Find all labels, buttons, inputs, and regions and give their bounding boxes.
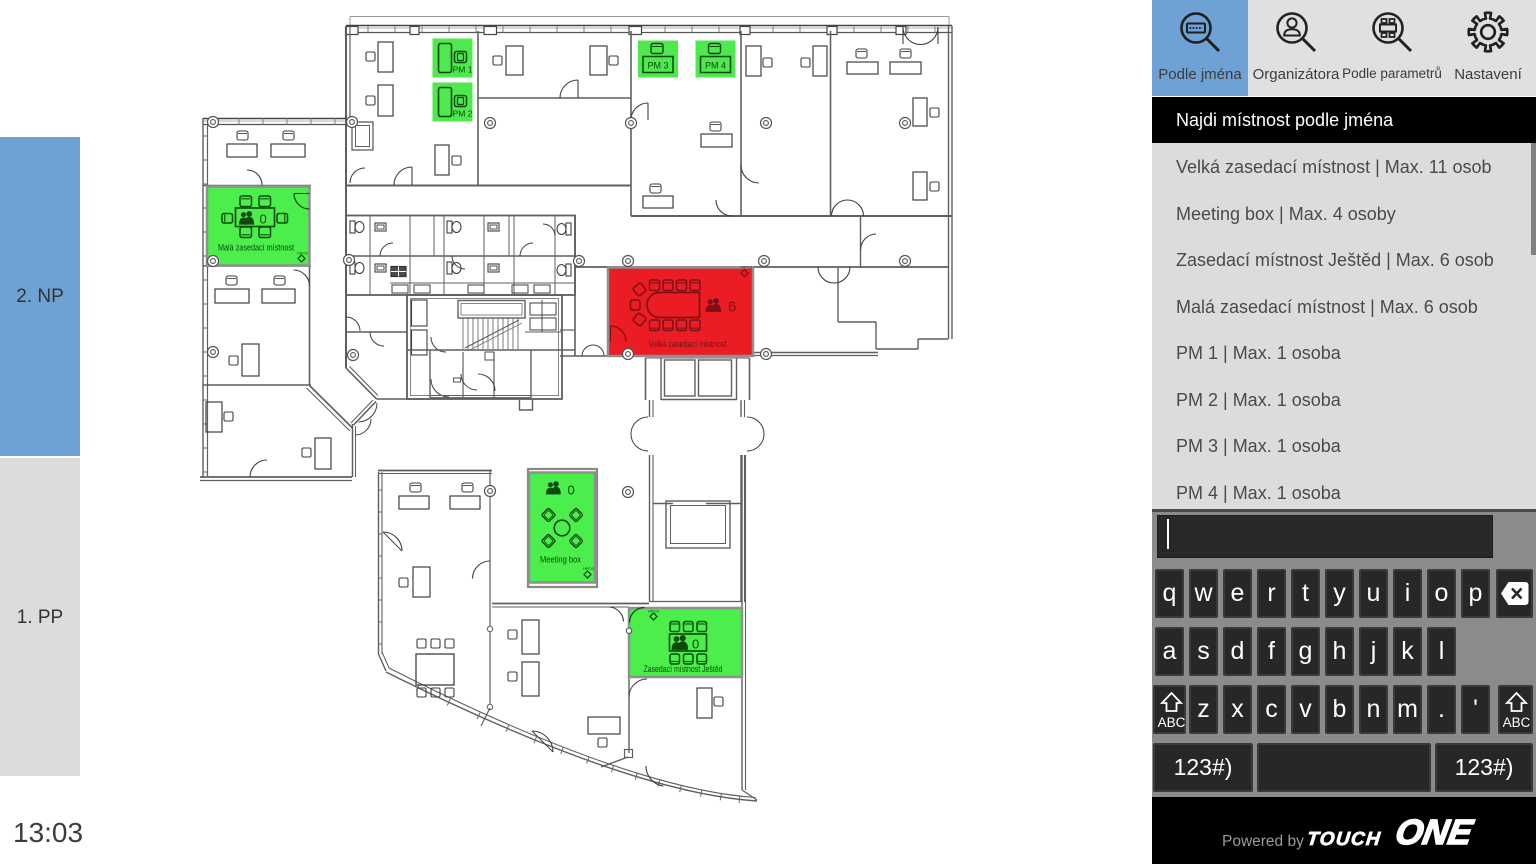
svg-text:PM 2: PM 2 [453, 109, 473, 119]
svg-text:6: 6 [728, 299, 736, 316]
svg-text:PM 3: PM 3 [647, 61, 668, 71]
svg-text:PM 4: PM 4 [705, 61, 726, 71]
svg-text:Meeting box: Meeting box [540, 555, 581, 566]
svg-text:HPO3: HPO3 [741, 265, 753, 270]
svg-text:HPO3: HPO3 [583, 566, 595, 571]
svg-text:0: 0 [568, 483, 575, 498]
svg-text:Zasedací místnost Ještěd: Zasedací místnost Ještěd [644, 664, 723, 675]
svg-text:0: 0 [260, 212, 267, 227]
svg-text:Velká zasedací místnost: Velká zasedací místnost [649, 339, 727, 350]
svg-text:ABC: ABC [1503, 715, 1531, 730]
svg-text:0: 0 [692, 637, 699, 652]
svg-text:PM 1: PM 1 [453, 65, 473, 75]
svg-text:HPO3: HPO3 [297, 251, 309, 256]
svg-text:Malá zasedací místnost: Malá zasedací místnost [218, 243, 294, 254]
svg-text:ABC: ABC [1158, 715, 1186, 730]
